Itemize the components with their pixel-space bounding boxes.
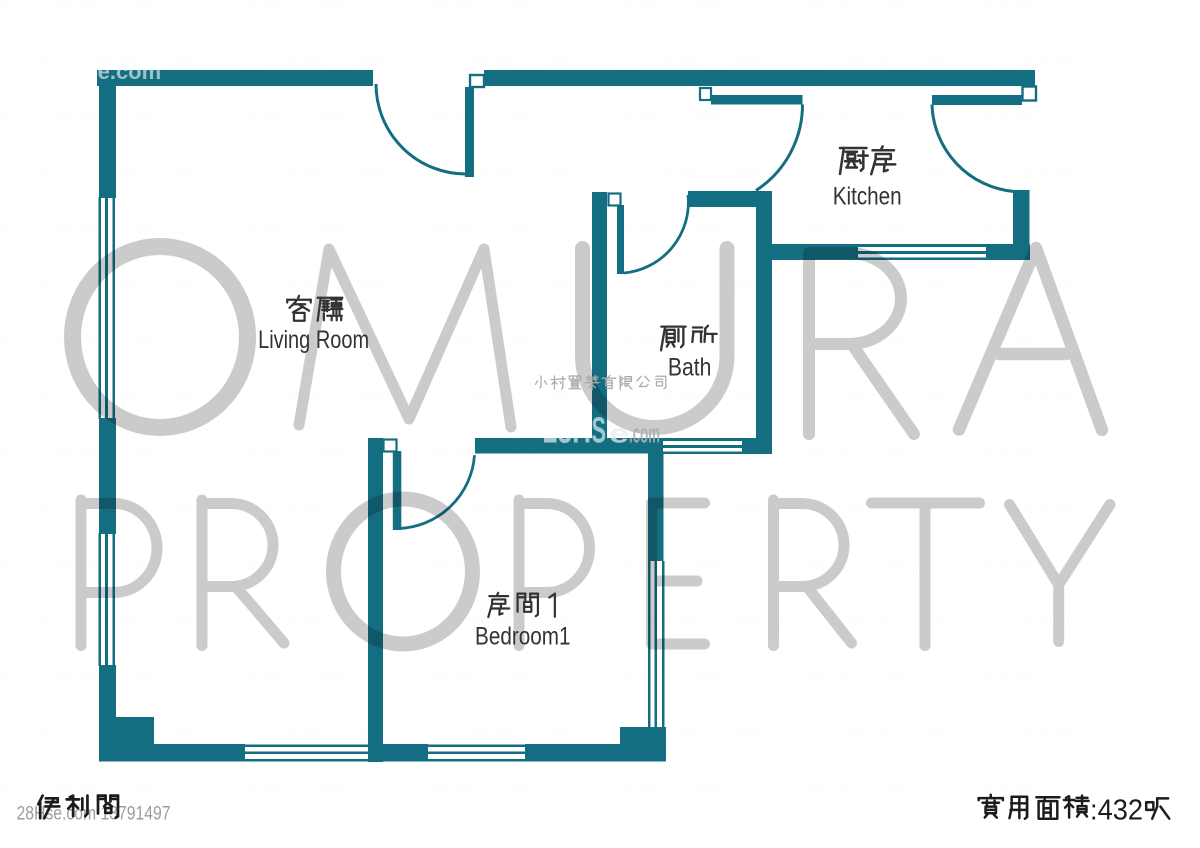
svg-text:28Hse.com: 28Hse.com bbox=[45, 59, 161, 84]
svg-text:28Hse.com 13791497 28Hse.com 1: 28Hse.com 13791497 28Hse.com 13791497 28… bbox=[0, 278, 1077, 293]
svg-text:28Hse.com 13791497 28Hse.com 1: 28Hse.com 13791497 28Hse.com 13791497 28… bbox=[0, 782, 1037, 797]
svg-text:28Hse.com 13791497 28Hse.com 1: 28Hse.com 13791497 28Hse.com 13791497 28… bbox=[0, 54, 1077, 69]
svg-text:28Hse.com 13791497 28Hse.com 1: 28Hse.com 13791497 28Hse.com 13791497 28… bbox=[0, 726, 1077, 741]
svg-text:28Hse.com 13791497 28Hse.com 1: 28Hse.com 13791497 28Hse.com 13791497 28… bbox=[0, 670, 1037, 685]
svg-text:28Hse.com 13791497 28Hse.com 1: 28Hse.com 13791497 28Hse.com 13791497 28… bbox=[0, 110, 1037, 125]
svg-text:28Hse.com 13791497 28Hse.com 1: 28Hse.com 13791497 28Hse.com 13791497 28… bbox=[0, 0, 1037, 13]
svg-text:S: S bbox=[592, 410, 607, 451]
svg-text:Bedroom1: Bedroom1 bbox=[475, 623, 571, 651]
svg-text:Bath: Bath bbox=[668, 354, 712, 382]
svg-text::432: :432 bbox=[1090, 795, 1143, 827]
svg-text:28H: 28H bbox=[543, 408, 591, 452]
svg-text:28Hse.com 13791497 28Hse.com 1: 28Hse.com 13791497 28Hse.com 13791497 28… bbox=[0, 166, 1077, 181]
svg-text:28Hse.com 13791497 28Hse.com 1: 28Hse.com 13791497 28Hse.com 13791497 28… bbox=[0, 390, 1077, 405]
svg-text:Kitchen: Kitchen bbox=[833, 183, 902, 211]
svg-text:e: e bbox=[609, 419, 629, 449]
svg-text:Living Room: Living Room bbox=[258, 326, 369, 354]
svg-text:28Hse.com 13791497 28Hse.com 1: 28Hse.com 13791497 28Hse.com 13791497 28… bbox=[0, 222, 1037, 237]
svg-text:.com: .com bbox=[629, 419, 660, 449]
